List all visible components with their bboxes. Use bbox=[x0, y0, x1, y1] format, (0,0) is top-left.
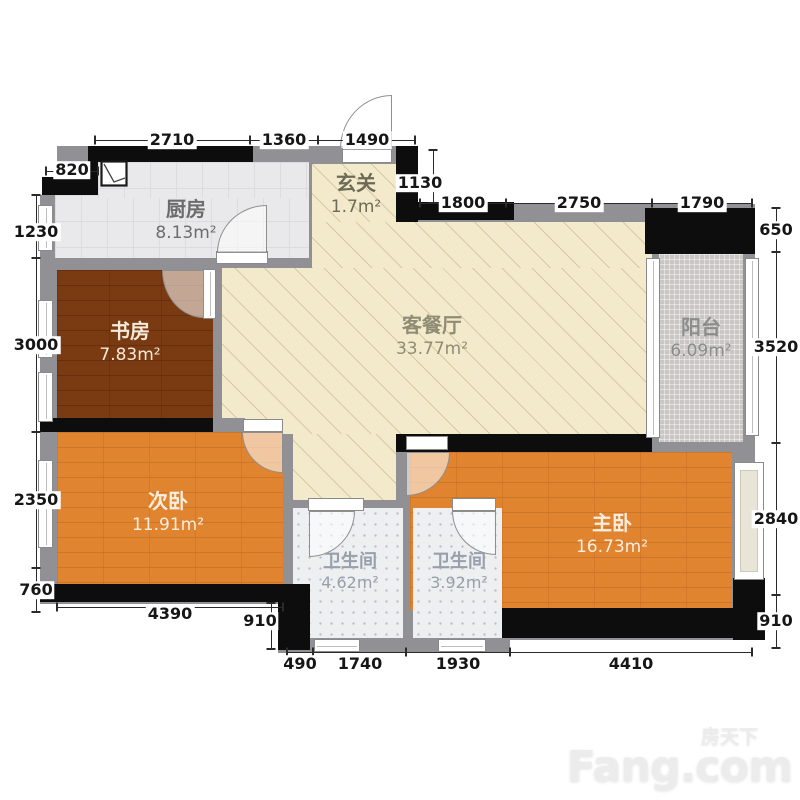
room-area: 11.91m² bbox=[132, 514, 204, 536]
room-area: 6.09m² bbox=[670, 340, 731, 362]
room-area: 4.62m² bbox=[321, 573, 379, 594]
dim-tick bbox=[772, 442, 781, 444]
dim-tick bbox=[32, 194, 41, 196]
dim-tick bbox=[56, 603, 58, 612]
room-label-bath1: 卫生间 4.62m² bbox=[321, 550, 379, 594]
room-label-bedroom2: 次卧 11.91m² bbox=[132, 488, 204, 536]
door-sill-master bbox=[406, 436, 448, 450]
dim-tick bbox=[419, 199, 421, 208]
dim-tick bbox=[772, 207, 781, 209]
dim-label-1930: 1930 bbox=[434, 655, 483, 673]
window-bath1-bottom bbox=[314, 639, 360, 652]
wall-segment bbox=[40, 418, 215, 432]
window-study-left-2 bbox=[38, 372, 53, 422]
room-area: 1.7m² bbox=[331, 196, 381, 218]
wall-segment bbox=[733, 578, 765, 640]
dim-tick bbox=[651, 199, 653, 208]
dim-tick bbox=[751, 648, 753, 657]
dim-label-910-right: 910 bbox=[757, 612, 794, 630]
wall-segment-gray bbox=[213, 418, 245, 432]
dim-tick bbox=[282, 603, 284, 612]
window-living-balcony bbox=[646, 258, 660, 438]
room-label-bath2: 卫生间 3.92m² bbox=[430, 550, 488, 594]
room-label-kitchen: 厨房 8.13m² bbox=[155, 196, 216, 244]
door-sill-bath2 bbox=[452, 498, 496, 511]
floor-plan: 厨房 8.13m² 玄关 1.7m² 客餐厅 33.77m² 书房 7.83m²… bbox=[0, 0, 800, 800]
door-sill-bath1 bbox=[308, 498, 364, 511]
dim-tick bbox=[429, 149, 438, 151]
living-floor-corridor bbox=[293, 434, 396, 500]
vent-window-icon bbox=[100, 160, 128, 187]
dim-label-1790: 1790 bbox=[678, 194, 727, 212]
dim-tick bbox=[505, 199, 507, 208]
dim-label-4410: 4410 bbox=[607, 655, 656, 673]
wall-segment bbox=[278, 584, 310, 650]
dim-tick bbox=[405, 648, 407, 657]
wall-segment bbox=[40, 584, 286, 602]
room-area: 7.83m² bbox=[99, 344, 160, 366]
dim-label-1490: 1490 bbox=[343, 131, 392, 149]
room-label-study: 书房 7.83m² bbox=[99, 318, 160, 366]
door-sill-bedroom2 bbox=[243, 419, 283, 432]
dim-line-bottom-outer bbox=[287, 652, 752, 653]
dim-tick bbox=[772, 647, 781, 649]
wall-segment bbox=[645, 208, 755, 254]
dim-label-2750: 2750 bbox=[555, 194, 604, 212]
dim-tick bbox=[267, 648, 276, 650]
room-name: 客餐厅 bbox=[396, 312, 468, 338]
dim-label-820: 820 bbox=[53, 161, 90, 179]
room-name: 卫生间 bbox=[430, 550, 488, 573]
dim-tick bbox=[509, 648, 511, 657]
dim-tick bbox=[45, 167, 47, 176]
living-floor-upper bbox=[312, 222, 652, 268]
dim-label-1360: 1360 bbox=[260, 131, 309, 149]
room-area: 3.92m² bbox=[430, 573, 488, 594]
fang-watermark-logo: Fang.com bbox=[567, 742, 792, 792]
dim-line-right bbox=[776, 208, 777, 648]
dim-label-2840: 2840 bbox=[752, 510, 800, 528]
room-label-master: 主卧 16.73m² bbox=[576, 510, 648, 558]
dim-tick bbox=[249, 136, 251, 145]
room-name: 书房 bbox=[99, 318, 160, 344]
dim-label-1130: 1130 bbox=[396, 174, 445, 192]
dim-tick bbox=[414, 136, 416, 145]
room-name: 卫生间 bbox=[321, 550, 379, 573]
room-name: 阳台 bbox=[670, 314, 731, 340]
dim-tick bbox=[32, 257, 41, 259]
dim-tick bbox=[32, 431, 41, 433]
dim-label-4390: 4390 bbox=[146, 605, 195, 623]
door-sill-study bbox=[203, 269, 216, 319]
door-sill-entry bbox=[342, 149, 392, 163]
dim-tick bbox=[94, 136, 96, 145]
fang-watermark: 房天下 Fang.com bbox=[582, 722, 792, 792]
room-name: 次卧 bbox=[132, 488, 204, 514]
dim-label-1800: 1800 bbox=[439, 194, 488, 212]
dim-label-3000: 3000 bbox=[12, 336, 61, 354]
dim-label-3520: 3520 bbox=[752, 338, 800, 356]
dim-tick bbox=[751, 199, 753, 208]
wall-segment bbox=[502, 608, 754, 638]
dim-label-1230: 1230 bbox=[12, 223, 61, 241]
room-name: 主卧 bbox=[576, 510, 648, 536]
dim-tick bbox=[32, 611, 41, 613]
room-label-entry: 玄关 1.7m² bbox=[331, 170, 381, 218]
kitchen-floor-upper bbox=[98, 162, 309, 198]
window-bath2-bottom bbox=[438, 639, 486, 652]
dim-tick bbox=[772, 594, 781, 596]
dim-label-760: 760 bbox=[17, 581, 54, 599]
wall-segment bbox=[42, 177, 98, 195]
dim-label-490: 490 bbox=[281, 655, 318, 673]
room-name: 厨房 bbox=[155, 196, 216, 222]
room-area: 8.13m² bbox=[155, 222, 216, 244]
dim-label-2710: 2710 bbox=[148, 131, 197, 149]
room-area: 33.77m² bbox=[396, 338, 468, 360]
dim-label-1740: 1740 bbox=[336, 655, 385, 673]
dim-label-910-bottom: 910 bbox=[241, 612, 278, 630]
dim-tick bbox=[772, 251, 781, 253]
room-area: 16.73m² bbox=[576, 536, 648, 558]
dim-tick bbox=[32, 567, 41, 569]
room-name: 玄关 bbox=[331, 170, 381, 196]
dim-label-650: 650 bbox=[757, 221, 794, 239]
dim-label-2350: 2350 bbox=[12, 491, 61, 509]
dim-tick bbox=[429, 202, 438, 204]
dim-tick bbox=[267, 602, 276, 604]
room-label-living: 客餐厅 33.77m² bbox=[396, 312, 468, 360]
room-label-balcony: 阳台 6.09m² bbox=[670, 314, 731, 362]
dim-tick bbox=[317, 136, 319, 145]
dim-tick bbox=[97, 167, 99, 176]
